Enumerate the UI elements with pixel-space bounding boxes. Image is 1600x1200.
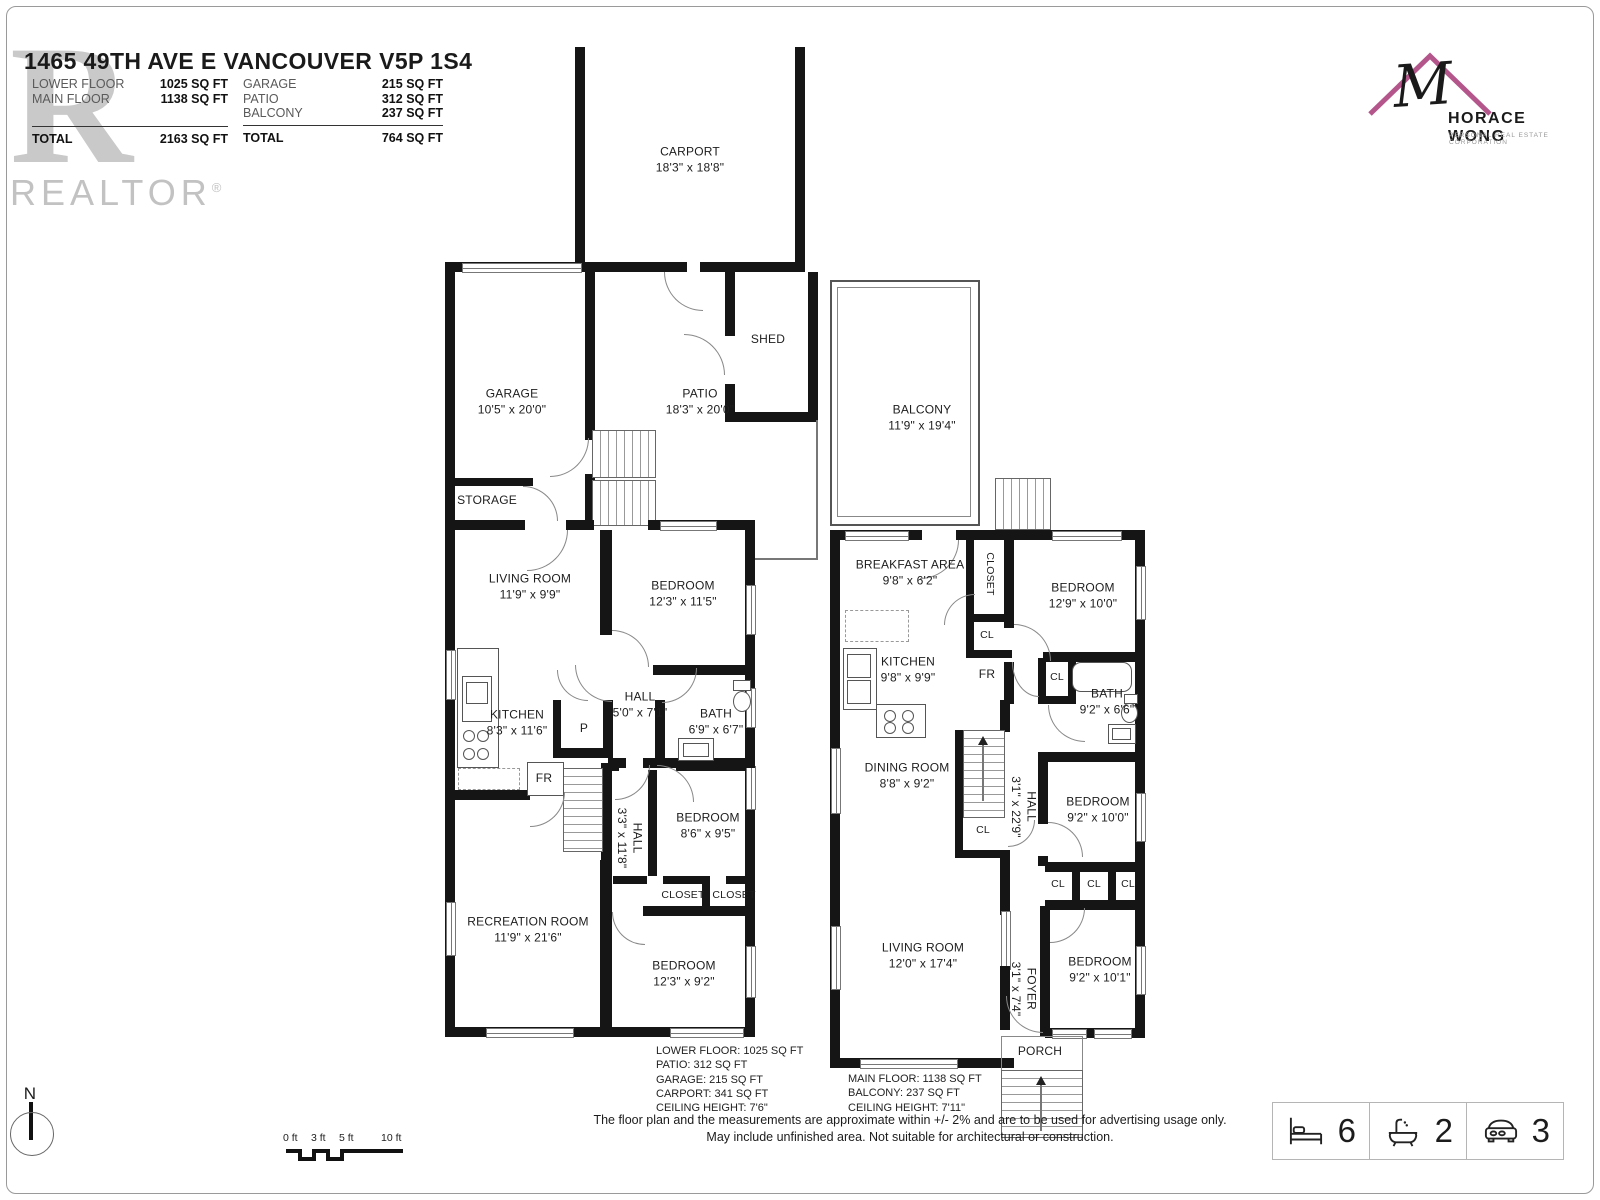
lower-floor-notes: LOWER FLOOR: 1025 SQ FT PATIO: 312 SQ FT… xyxy=(656,1044,803,1115)
wall xyxy=(445,790,530,800)
room-dims: 9'8" x 6'2" xyxy=(856,573,965,589)
row-label: GARAGE xyxy=(243,77,297,92)
wall xyxy=(1004,540,1014,628)
room-label-fridge: FR xyxy=(979,667,995,683)
counter-dashed xyxy=(458,768,520,790)
beds-count: 6 xyxy=(1338,1112,1356,1150)
stats-legend: 6 2 3 xyxy=(1272,1102,1564,1160)
room-label-bedroom: BEDROOM12'3" x 9'2" xyxy=(652,958,715,989)
wall xyxy=(955,730,963,858)
room-label-bedroom: BEDROOM12'9" x 10'0" xyxy=(1049,580,1117,611)
room-label-bath: BATH6'9" x 6'7" xyxy=(689,706,744,737)
floor-plan-page: R REALTOR® 1465 49TH AVE E VANCOUVER V5P… xyxy=(0,0,1600,1200)
room-name: LIVING ROOM xyxy=(489,571,571,587)
divider xyxy=(243,125,443,126)
room-label-closet: CL xyxy=(980,629,994,643)
patio-edge xyxy=(816,420,818,560)
note-line: GARAGE: 215 SQ FT xyxy=(656,1073,803,1087)
stairs-arrow-line xyxy=(982,745,984,801)
window xyxy=(1136,566,1146,620)
wall xyxy=(553,748,613,758)
room-name: CL xyxy=(1050,671,1064,685)
stat-baths: 2 xyxy=(1369,1103,1466,1159)
summary-row: LOWER FLOOR1025 SQ FT xyxy=(32,77,228,92)
wall xyxy=(1038,762,1048,824)
row-label: PATIO xyxy=(243,92,279,107)
room-name: BEDROOM xyxy=(1049,580,1117,596)
summary-row: GARAGE215 SQ FT xyxy=(243,77,443,92)
room-dims: 6'9" x 6'7" xyxy=(689,722,744,738)
room-name: CL xyxy=(976,824,990,838)
agent-tagline: PERSONAL REAL ESTATE CORPORATION xyxy=(1449,132,1575,146)
agent-monogram: M xyxy=(1391,54,1454,116)
room-label-bath: BATH9'2" x 6'6" xyxy=(1080,686,1135,717)
row-value: 215 SQ FT xyxy=(382,77,443,92)
bath-sink-basin xyxy=(683,743,709,757)
room-dims: 9'2" x 10'0" xyxy=(1066,810,1129,826)
room-dims: 12'3" x 9'2" xyxy=(652,974,715,990)
room-name: LIVING ROOM xyxy=(882,940,964,956)
window xyxy=(845,531,909,541)
north-circle xyxy=(10,1112,54,1156)
note-line: LOWER FLOOR: 1025 SQ FT xyxy=(656,1044,803,1058)
scale-tick: 0 ft xyxy=(283,1132,298,1144)
room-label-kitchen: KITCHEN8'3" x 11'6" xyxy=(487,707,548,738)
room-name: HALL xyxy=(1023,776,1039,838)
room-label-fridge: FR xyxy=(536,771,552,787)
room-name: FR xyxy=(536,771,552,787)
window xyxy=(486,1028,574,1038)
room-dims: 12'3" x 11'5" xyxy=(649,594,717,610)
room-label-hall: HALL5'0" x 7'1" xyxy=(613,689,668,720)
room-label-closet: CLOSET xyxy=(661,889,704,903)
room-dims: 9'2" x 10'1" xyxy=(1068,970,1131,986)
row-value: 1025 SQ FT xyxy=(160,77,228,92)
total-value: 764 SQ FT xyxy=(382,131,443,145)
stairs xyxy=(995,478,1051,530)
room-name: CLOSET xyxy=(982,552,996,595)
room-name: CL xyxy=(1121,878,1135,892)
room-name: DINING ROOM xyxy=(865,760,950,776)
room-label-bedroom: BEDROOM9'2" x 10'1" xyxy=(1068,954,1131,985)
scale-tick: 3 ft xyxy=(311,1132,326,1144)
room-name: FOYER xyxy=(1023,962,1039,1017)
disclaimer: The floor plan and the measurements are … xyxy=(520,1112,1300,1146)
window xyxy=(462,263,582,273)
window xyxy=(1094,1029,1132,1039)
kitchen-sink-basin xyxy=(847,680,871,704)
wall xyxy=(585,272,595,440)
wall xyxy=(600,860,612,1037)
stove-burner xyxy=(884,722,896,734)
room-label-pantry: P xyxy=(580,721,588,737)
room-name: FR xyxy=(979,667,995,683)
window xyxy=(670,1028,744,1038)
wall xyxy=(663,876,710,884)
room-name: GARAGE xyxy=(478,386,546,402)
room-dims: 8'8" x 9'2" xyxy=(865,776,950,792)
bed-icon xyxy=(1286,1114,1326,1148)
room-label-bedroom: BEDROOM12'3" x 11'5" xyxy=(649,578,717,609)
stove-burner xyxy=(477,748,489,760)
room-name: CL xyxy=(980,629,994,643)
wall xyxy=(648,770,657,876)
room-name: CARPORT xyxy=(656,144,724,160)
area-summary-left: LOWER FLOOR1025 SQ FT MAIN FLOOR1138 SQ … xyxy=(32,77,228,146)
room-dims: 12'0" x 17'4" xyxy=(882,956,964,972)
page-title: 1465 49TH AVE E VANCOUVER V5P 1S4 xyxy=(24,48,472,75)
scale-tick: 5 ft xyxy=(339,1132,354,1144)
window xyxy=(831,748,841,814)
room-label-patio: PATIO18'3" x 20'0" xyxy=(666,386,734,417)
room-name: PATIO xyxy=(666,386,734,402)
wall xyxy=(1045,862,1145,872)
stat-beds: 6 xyxy=(1273,1103,1369,1159)
room-dims: 18'3" x 18'8" xyxy=(656,160,724,176)
wall xyxy=(1038,752,1145,762)
room-name: BATH xyxy=(689,706,744,722)
window xyxy=(746,946,756,998)
realtor-wordmark-text: REALTOR xyxy=(10,172,212,213)
room-label-bedroom: BEDROOM9'2" x 10'0" xyxy=(1066,794,1129,825)
summary-total: TOTAL764 SQ FT xyxy=(243,131,443,145)
room-name: BEDROOM xyxy=(1068,954,1131,970)
room-name: KITCHEN xyxy=(881,654,936,670)
wall xyxy=(1000,858,1010,915)
counter-dashed xyxy=(845,610,909,642)
room-label-shed: SHED xyxy=(751,332,785,348)
room-name: HALL xyxy=(629,808,645,869)
room-name: CLOSET xyxy=(712,889,755,903)
wall xyxy=(613,876,647,884)
room-name: CLOSET xyxy=(661,889,704,903)
room-label-closet: CL xyxy=(976,824,990,838)
room-label-porch: PORCH xyxy=(1018,1044,1062,1060)
wall xyxy=(600,530,612,635)
room-label-recreation: RECREATION ROOM11'9" x 21'6" xyxy=(467,914,588,945)
scale-bar-graphic xyxy=(285,1148,407,1164)
wall xyxy=(966,650,1012,658)
room-label-hall: HALL3'1" x 22'9" xyxy=(1007,776,1038,838)
room-label-carport: CARPORT18'3" x 18'8" xyxy=(656,144,724,175)
wall xyxy=(575,47,585,272)
note-line: MAIN FLOOR: 1138 SQ FT xyxy=(848,1072,982,1086)
room-label-living: LIVING ROOM12'0" x 17'4" xyxy=(882,940,964,971)
window xyxy=(746,766,756,810)
summary-row: BALCONY237 SQ FT xyxy=(243,106,443,121)
room-label-living: LIVING ROOM11'9" x 9'9" xyxy=(489,571,571,602)
stove-burner xyxy=(884,710,896,722)
stairs xyxy=(592,430,656,478)
room-dims: 10'5" x 20'0" xyxy=(478,402,546,418)
disclaimer-line: The floor plan and the measurements are … xyxy=(520,1112,1300,1129)
room-name: BEDROOM xyxy=(652,958,715,974)
room-label-breakfast: BREAKFAST AREA9'8" x 6'2" xyxy=(856,557,965,588)
wall xyxy=(1072,872,1080,902)
room-label-balcony: BALCONY11'9" x 19'4" xyxy=(888,402,956,433)
stove-burner xyxy=(902,722,914,734)
note-line: BALCONY: 237 SQ FT xyxy=(848,1086,982,1100)
room-name: BREAKFAST AREA xyxy=(856,557,965,573)
summary-row: MAIN FLOOR1138 SQ FT xyxy=(32,92,228,107)
room-dims: 11'9" x 19'4" xyxy=(888,418,956,434)
wall xyxy=(955,850,1010,858)
window xyxy=(831,926,841,990)
window xyxy=(660,521,717,531)
summary-total: TOTAL2163 SQ FT xyxy=(32,132,228,146)
window xyxy=(446,902,456,956)
area-summary-right: GARAGE215 SQ FT PATIO312 SQ FT BALCONY23… xyxy=(243,77,443,145)
divider xyxy=(32,126,228,127)
stove-burner xyxy=(463,730,475,742)
room-label-foyer: FOYER3'1" x 7'4" xyxy=(1007,962,1038,1017)
wall xyxy=(445,520,525,530)
total-value: 2163 SQ FT xyxy=(160,132,228,146)
room-name: KITCHEN xyxy=(487,707,548,723)
stairs xyxy=(563,768,603,852)
disclaimer-line: May include unfinished area. Not suitabl… xyxy=(520,1129,1300,1146)
room-label-garage: GARAGE10'5" x 20'0" xyxy=(478,386,546,417)
room-name: PORCH xyxy=(1018,1044,1062,1060)
wall xyxy=(1000,700,1010,732)
stairs xyxy=(592,480,656,526)
wall xyxy=(676,763,745,771)
window xyxy=(860,1059,958,1069)
room-label-dining: DINING ROOM8'8" x 9'2" xyxy=(865,760,950,791)
row-value: 237 SQ FT xyxy=(382,106,443,121)
wall xyxy=(725,412,818,422)
wall xyxy=(1038,696,1076,704)
room-name: P xyxy=(580,721,588,737)
wall xyxy=(603,700,613,752)
room-name: CL xyxy=(1051,878,1065,892)
room-label-closet: CL xyxy=(1087,878,1101,892)
patio-edge xyxy=(750,558,818,560)
stove xyxy=(876,704,926,738)
wall xyxy=(445,530,455,1037)
note-line: CARPORT: 341 SQ FT xyxy=(656,1087,803,1101)
room-label-bedroom: BEDROOM8'6" x 9'5" xyxy=(676,810,739,841)
room-dims: 11'9" x 21'6" xyxy=(467,930,588,946)
wall xyxy=(808,272,818,422)
row-value: 312 SQ FT xyxy=(382,92,443,107)
room-name: HALL xyxy=(613,689,668,705)
window xyxy=(746,585,756,635)
cars-count: 3 xyxy=(1532,1112,1550,1150)
room-dims: 3'1" x 7'4" xyxy=(1007,962,1023,1017)
total-label: TOTAL xyxy=(32,132,73,146)
note-line: PATIO: 312 SQ FT xyxy=(656,1058,803,1072)
room-name: STORAGE xyxy=(457,493,517,509)
room-dims: 18'3" x 20'0" xyxy=(666,402,734,418)
room-label-closet: CL xyxy=(1050,671,1064,685)
stat-cars: 3 xyxy=(1466,1103,1563,1159)
room-name: BALCONY xyxy=(888,402,956,418)
wall xyxy=(1043,652,1145,662)
baths-count: 2 xyxy=(1435,1112,1453,1150)
window xyxy=(446,650,456,700)
room-name: BEDROOM xyxy=(1066,794,1129,810)
row-label: MAIN FLOOR xyxy=(32,92,110,107)
realtor-wordmark: REALTOR® xyxy=(10,172,226,214)
wall xyxy=(643,906,755,916)
window xyxy=(1136,793,1146,842)
wall xyxy=(553,700,561,752)
room-name: BEDROOM xyxy=(649,578,717,594)
room-label-closet: CLOSET xyxy=(712,889,755,903)
wall xyxy=(1108,872,1116,902)
room-label-kitchen: KITCHEN9'8" x 9'9" xyxy=(881,654,936,685)
wall xyxy=(795,47,805,272)
row-label: BALCONY xyxy=(243,106,303,121)
room-label-closet: CLOSET xyxy=(982,552,996,595)
room-dims: 9'8" x 9'9" xyxy=(881,670,936,686)
toilet-tank xyxy=(733,680,751,691)
room-name: RECREATION ROOM xyxy=(467,914,588,930)
room-dims: 8'6" x 9'5" xyxy=(676,826,739,842)
wall xyxy=(726,876,745,884)
room-dims: 8'3" x 11'6" xyxy=(487,723,548,739)
row-label: LOWER FLOOR xyxy=(32,77,124,92)
room-label-hall2: HALL3'3" x 11'8" xyxy=(613,808,644,869)
total-label: TOTAL xyxy=(243,131,284,145)
row-value: 1138 SQ FT xyxy=(161,92,228,107)
car-icon xyxy=(1480,1114,1522,1148)
room-dims: 3'1" x 22'9" xyxy=(1007,776,1023,838)
room-label-closet: CL xyxy=(1121,878,1135,892)
stairs-up-arrow xyxy=(978,736,988,745)
wall xyxy=(566,520,594,530)
room-name: BEDROOM xyxy=(676,810,739,826)
room-dims: 12'9" x 10'0" xyxy=(1049,596,1117,612)
window xyxy=(1052,531,1122,541)
bath-icon xyxy=(1383,1114,1423,1148)
wall xyxy=(445,478,533,486)
room-dims: 11'9" x 9'9" xyxy=(489,587,571,603)
room-dims: 9'2" x 6'6" xyxy=(1080,702,1135,718)
room-name: BATH xyxy=(1080,686,1135,702)
room-label-storage: STORAGE xyxy=(457,493,517,509)
kitchen-sink-basin xyxy=(847,654,871,678)
room-name: CL xyxy=(1087,878,1101,892)
summary-row: PATIO312 SQ FT xyxy=(243,92,443,107)
wall xyxy=(700,262,805,272)
bath-sink-basin xyxy=(1112,728,1131,740)
room-label-closet: CL xyxy=(1051,878,1065,892)
scale-tick: 10 ft xyxy=(381,1132,401,1144)
window xyxy=(1136,946,1146,995)
kitchen-sink-basin xyxy=(466,682,488,704)
main-floor-notes: MAIN FLOOR: 1138 SQ FT BALCONY: 237 SQ F… xyxy=(848,1072,982,1115)
wall xyxy=(725,272,735,336)
room-dims: 3'3" x 11'8" xyxy=(613,808,629,869)
room-dims: 5'0" x 7'1" xyxy=(613,705,668,721)
stairs-up-arrow xyxy=(1036,1076,1046,1085)
stove-burner xyxy=(902,710,914,722)
room-name: SHED xyxy=(751,332,785,348)
registered-mark: ® xyxy=(212,180,227,195)
stove-burner xyxy=(463,748,475,760)
